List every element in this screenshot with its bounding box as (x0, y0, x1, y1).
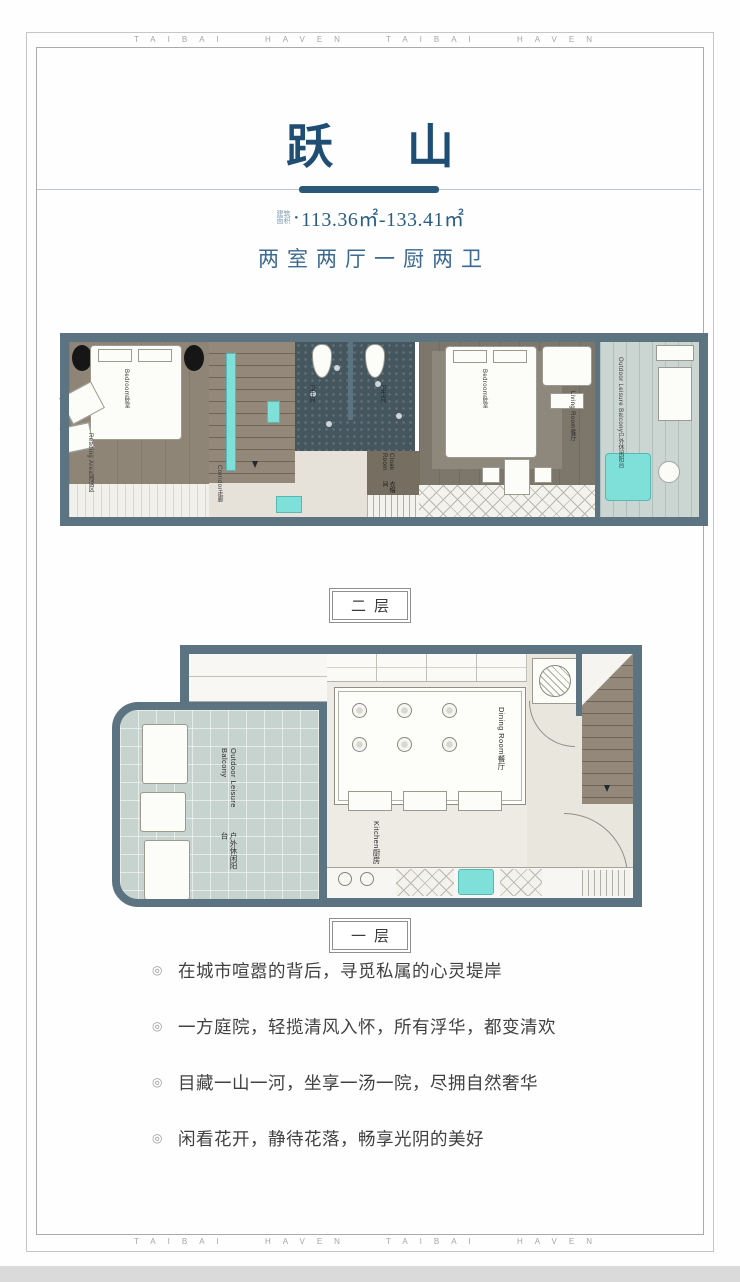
lounge-table (140, 792, 186, 832)
floor2-tag: 二层 (329, 588, 411, 623)
pillow (493, 350, 527, 363)
wall-left-upper (180, 645, 189, 707)
room-label-bathroom-right: 卫生间 (378, 385, 385, 425)
marketing-text: 一方庭院，轻揽清风入怀，所有浮华，都变清欢 (178, 1014, 556, 1039)
marketing-line: ◎ 目藏一山一河，坐享一汤一院，尽拥自然奢华 (152, 1070, 622, 1095)
sofa (542, 346, 592, 386)
coffee-table (550, 393, 584, 409)
place-setting (397, 737, 412, 752)
area-value: 113.36㎡-133.41㎡ (301, 203, 464, 232)
marketing-copy: ◎ 在城市喧嚣的背后，寻觅私属的心灵堤岸 ◎ 一方庭院，轻揽清风入怀，所有浮华，… (152, 958, 622, 1182)
room-label-bedroom-left: Bedroom 卧室 (122, 369, 129, 431)
place-setting (442, 737, 457, 752)
wall-bottom (327, 898, 642, 907)
marketing-line: ◎ 一方庭院，轻揽清风入怀，所有浮华，都变清欢 (152, 1014, 622, 1039)
room-label-balcony-2f: Outdoor Leisure Balcony 户外休闲阳台 (616, 357, 623, 502)
lounge-chair (144, 840, 190, 900)
floor1-plan: Outdoor Leisure Balcony 户外休闲阳台 Dining Ro… (112, 645, 642, 907)
area-label: 建筑面积 (275, 211, 291, 225)
kitchen-sink (458, 869, 494, 895)
window-band (189, 654, 327, 702)
room-label-cloak-room: Cloak Room 衣帽间 (380, 453, 394, 495)
wall-left (60, 333, 69, 526)
stair-rail (226, 353, 236, 471)
hot-tub (605, 453, 651, 501)
room-label-bathroom-left: 卫生间 (307, 385, 314, 425)
floorplan-poster: TAIBAI HAVEN TAIBAI HAVEN TAIBAI HAVEN T… (0, 0, 740, 1282)
tile-flower (326, 421, 332, 427)
cabinet-hatch (396, 869, 454, 896)
room-label-balcony-1f: Outdoor Leisure Balcony 户外休闲阳台 (220, 748, 238, 873)
dining-chair (458, 791, 502, 811)
place-setting (442, 703, 457, 718)
place-setting (397, 703, 412, 718)
bullet-icon: ◎ (152, 963, 163, 978)
nightstand-right (184, 345, 204, 371)
bottom-strip (0, 1266, 740, 1282)
tile-flower (334, 365, 340, 371)
room-type-line: 两室两厅一厨两卫 (0, 243, 740, 273)
bath-mat (267, 401, 280, 423)
marketing-text: 目藏一山一河，坐享一汤一院，尽拥自然奢华 (178, 1070, 538, 1095)
floor2-plan: Bedroom 卧室 Reading Area 阅读区 Corridor 走廊 … (60, 333, 708, 526)
place-setting (352, 737, 367, 752)
marketing-text: 在城市喧嚣的背后，寻觅私属的心灵堤岸 (178, 958, 502, 983)
room-label-corridor: Corridor 走廊 (215, 465, 222, 515)
desk-chair (534, 467, 552, 483)
stair-arrow-icon (604, 785, 610, 792)
dining-window-cabinet (327, 654, 527, 682)
wall-right (699, 333, 708, 526)
marketing-line: ◎ 闲看花开，静待花落，畅享光阴的美好 (152, 1126, 622, 1151)
marketing-text: 闲看花开，静待花落，畅享光阴的美好 (178, 1126, 484, 1151)
cabinet-hatch (500, 869, 542, 896)
shoe-cabinet (582, 870, 630, 896)
washer-drum-icon (539, 665, 571, 697)
room-label-kitchen: Kitchen 厨房 (372, 821, 381, 873)
wall-bottom (60, 517, 708, 526)
desk-chair (482, 467, 500, 483)
brand-text-bottom: TAIBAI HAVEN TAIBAI HAVEN (36, 1237, 702, 1246)
place-setting (352, 703, 367, 718)
brand-text-top: TAIBAI HAVEN TAIBAI HAVEN (36, 35, 702, 44)
bullet-icon: ◎ (152, 1131, 163, 1146)
stove-burner-icon (360, 872, 374, 886)
marketing-line: ◎ 在城市喧嚣的背后，寻觅私属的心灵堤岸 (152, 958, 622, 983)
area-row: 建筑面积 ● 113.36㎡-133.41㎡ (0, 203, 740, 232)
bullet-icon: ◎ (152, 1075, 163, 1090)
lounge-chair (142, 724, 188, 784)
balcony-1f: Outdoor Leisure Balcony 户外休闲阳台 (112, 702, 327, 907)
corridor-cabinet (276, 496, 302, 513)
room-label-living-room: Living Room 客厅 (568, 391, 575, 457)
stair-landing (582, 654, 633, 706)
tile-flower (396, 413, 402, 419)
cloak-wardrobe (367, 495, 419, 517)
bathroom-divider-wall (348, 342, 353, 420)
room-label-reading-area: Reading Area 阅读区 (86, 433, 93, 495)
wall-top (180, 645, 642, 654)
pillow (453, 350, 487, 363)
washer (532, 658, 578, 704)
floor1-tag: 一层 (329, 918, 411, 953)
balcony-shelf (656, 345, 694, 361)
stair-arrow-icon (252, 461, 258, 468)
area-dot-icon: ● (294, 215, 298, 221)
room-label-bedroom-right: Bedroom 卧室 (480, 369, 487, 431)
side-stool (658, 461, 680, 483)
desk-table (504, 459, 530, 495)
wall-right (633, 654, 642, 907)
bullet-icon: ◎ (152, 1019, 163, 1034)
nightstand-left (72, 345, 92, 371)
room-label-dining: Dining Room 餐厅 (497, 707, 506, 797)
dining-chair (348, 791, 392, 811)
page-title: 跃 山 (0, 108, 740, 177)
lounge-chair (658, 367, 692, 421)
stove-burner-icon (338, 872, 352, 886)
pillow (138, 349, 172, 362)
divider-accent-bar (299, 186, 439, 193)
dining-chair (403, 791, 447, 811)
wall-top (60, 333, 708, 342)
pillow (98, 349, 132, 362)
